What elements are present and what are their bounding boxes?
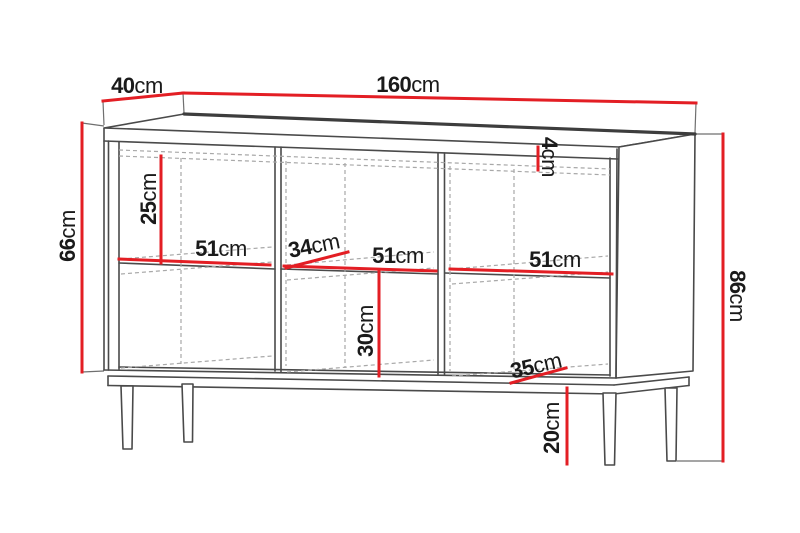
dim-unit: cm xyxy=(55,210,80,239)
front-right-leg xyxy=(603,393,616,465)
dim-value: 25 xyxy=(136,202,161,225)
dim-label-body-height: 66cm xyxy=(57,210,79,262)
dim-value: 20 xyxy=(539,431,564,454)
dim-value: 51 xyxy=(195,236,218,261)
dim-unit: cm xyxy=(353,305,378,334)
dim-value: 51 xyxy=(372,243,395,268)
dim-unit: cm xyxy=(539,402,564,431)
dim-unit: cm xyxy=(411,72,440,97)
legs xyxy=(121,384,677,465)
dim-label-upper-compartment-height: 25cm xyxy=(138,173,160,225)
dim-unit: cm xyxy=(725,293,750,322)
dim-label-compartment-width-right: 51cm xyxy=(529,249,581,271)
front-left-leg xyxy=(121,386,133,449)
dim-value: 30 xyxy=(353,334,378,357)
dim-unit: cm xyxy=(537,149,562,178)
dim-unit: cm xyxy=(218,236,247,261)
dim-label-top-width: 160cm xyxy=(376,74,439,96)
dim-unit: cm xyxy=(136,173,161,202)
back-left-leg xyxy=(182,384,193,442)
dim-label-top-depth: 40cm xyxy=(111,75,163,97)
dim-value: 4 xyxy=(537,137,562,149)
dim-value: 86 xyxy=(725,270,750,293)
dim-label-lower-compartment-height: 30cm xyxy=(355,305,377,357)
back-right-leg xyxy=(665,388,677,461)
dim-label-top-panel-thickness: 4cm xyxy=(538,137,560,177)
dim-label-compartment-width-left: 51cm xyxy=(195,238,247,260)
dim-value: 66 xyxy=(55,239,80,262)
furniture-dimension-diagram: 40cm 160cm 66cm 86cm 25cm 51cm 34cm 51cm… xyxy=(0,0,800,533)
dim-value: 160 xyxy=(376,72,411,97)
dim-unit: cm xyxy=(552,247,581,272)
dim-unit: cm xyxy=(309,228,342,258)
dim-label-compartment-width-middle: 51cm xyxy=(372,245,424,267)
dim-value: 40 xyxy=(111,73,134,98)
dim-value: 51 xyxy=(529,247,552,272)
dim-label-total-height: 86cm xyxy=(726,270,748,322)
dim-unit: cm xyxy=(395,243,424,268)
dim-label-leg-height: 20cm xyxy=(541,402,563,454)
dim-unit: cm xyxy=(134,73,163,98)
